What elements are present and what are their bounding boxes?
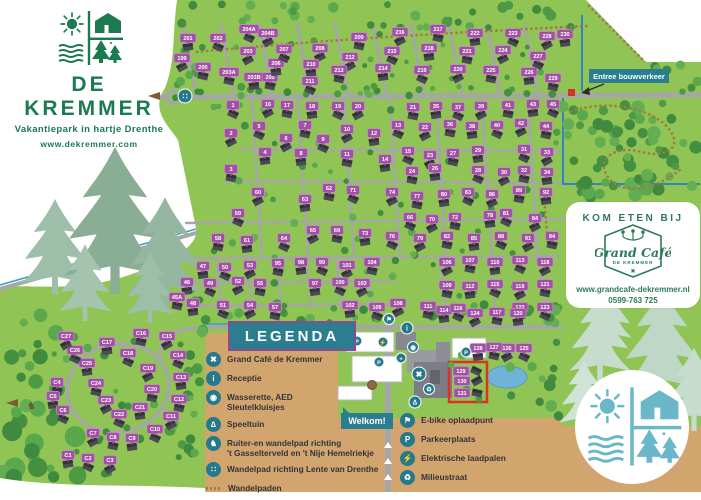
tree bbox=[553, 129, 560, 136]
tree bbox=[271, 17, 278, 24]
house-number: 108 bbox=[393, 301, 402, 307]
house-number: 224 bbox=[498, 48, 508, 54]
house-number: 92 bbox=[543, 190, 549, 196]
house-number: 223 bbox=[508, 31, 517, 37]
svg-text:◉: ◉ bbox=[410, 344, 416, 351]
house-number: 36 bbox=[447, 122, 453, 128]
house-number: 115 bbox=[490, 282, 499, 288]
brand-badge bbox=[575, 370, 689, 484]
house-number: 82 bbox=[444, 234, 450, 240]
tree bbox=[24, 443, 40, 459]
utensils-icon: ✖ bbox=[206, 352, 221, 367]
house-number: 112 bbox=[465, 284, 474, 290]
house-number: C12 bbox=[174, 397, 184, 403]
svg-text:✖: ✖ bbox=[416, 370, 423, 379]
house-marker: 3 bbox=[225, 165, 238, 183]
tree bbox=[18, 349, 26, 357]
tree bbox=[28, 458, 47, 477]
house-number: 16 bbox=[265, 102, 271, 108]
house-number: 32 bbox=[521, 168, 527, 174]
tree bbox=[368, 56, 374, 62]
tree bbox=[640, 182, 653, 195]
house-number: C7 bbox=[89, 431, 96, 437]
house-number: 226 bbox=[524, 70, 533, 76]
house-number: 81 bbox=[503, 211, 509, 217]
tree bbox=[271, 279, 279, 287]
tree bbox=[480, 300, 489, 309]
house-number: 203 bbox=[243, 49, 252, 55]
svg-text:⚡: ⚡ bbox=[379, 338, 386, 346]
legend-item: iReceptie bbox=[206, 371, 392, 386]
tree bbox=[390, 73, 395, 78]
house-number: 44 bbox=[543, 124, 550, 130]
house-number: 50 bbox=[222, 265, 228, 271]
house-number: 89 bbox=[516, 188, 522, 194]
house-number: 74 bbox=[389, 190, 396, 196]
tree bbox=[177, 19, 186, 28]
tree bbox=[330, 305, 337, 312]
house-number: 217 bbox=[433, 27, 442, 33]
tree bbox=[284, 88, 292, 96]
house-number: 41 bbox=[505, 103, 511, 109]
house-number: 29 bbox=[475, 148, 481, 154]
legend-item: ⚡Elektrische laadpalen bbox=[400, 451, 535, 466]
house-number: C4 bbox=[53, 380, 61, 386]
tree bbox=[190, 449, 199, 458]
svg-text:⚑: ⚑ bbox=[386, 316, 392, 323]
tree bbox=[270, 197, 276, 203]
tree bbox=[612, 127, 623, 138]
house-marker: 57 bbox=[269, 303, 282, 321]
house-number: C15 bbox=[162, 334, 172, 340]
ebike-icon: ⚑ bbox=[400, 413, 415, 428]
trash-icon: ♻ bbox=[400, 470, 415, 485]
house-number: 129 bbox=[456, 369, 465, 375]
tree bbox=[367, 291, 374, 298]
tree bbox=[570, 156, 579, 165]
house-marker: 35 bbox=[430, 102, 443, 120]
legend-right-column: ⚑E-bike oplaadpuntPParkeerplaats⚡Elektri… bbox=[400, 413, 535, 489]
tree bbox=[455, 19, 462, 26]
reception-marker: i bbox=[401, 322, 413, 334]
construction-entrance-marker bbox=[568, 89, 575, 96]
tree bbox=[47, 465, 55, 473]
tree bbox=[564, 131, 573, 140]
tree bbox=[679, 88, 685, 94]
ev-charger-icon: ⚡ bbox=[400, 451, 415, 466]
tree bbox=[405, 92, 412, 99]
tree bbox=[359, 305, 368, 314]
tree bbox=[195, 377, 204, 386]
tree bbox=[185, 350, 195, 360]
tree bbox=[389, 272, 397, 280]
house-number: C1 bbox=[64, 453, 71, 459]
tree bbox=[460, 248, 465, 253]
house-number: 15 bbox=[405, 149, 411, 155]
house-marker: 36 bbox=[444, 120, 457, 138]
washer-icon: ◉ bbox=[206, 390, 221, 405]
legend-item: ∷Wandelpad richting Lente van Drenthe bbox=[206, 462, 392, 477]
house-number: 70 bbox=[429, 217, 435, 223]
tree bbox=[468, 85, 473, 90]
tree bbox=[374, 88, 380, 94]
house-marker: 4 bbox=[259, 148, 272, 166]
house-marker: 11 bbox=[341, 150, 354, 168]
house-number: 18 bbox=[309, 104, 315, 110]
house-number: C23 bbox=[101, 398, 111, 404]
grand-cafe-logo: Grand Café DE KREMMER ✖ bbox=[595, 224, 671, 278]
house-number: 53 bbox=[247, 263, 253, 269]
tree bbox=[358, 91, 363, 96]
horse-statue-icon: ♞ bbox=[27, 401, 36, 412]
house-marker: 38 bbox=[466, 122, 479, 140]
house-marker: C1 bbox=[62, 451, 75, 469]
house-marker: 94 bbox=[546, 232, 559, 250]
tree bbox=[440, 42, 445, 47]
tree bbox=[687, 181, 697, 191]
house-number: 203A bbox=[222, 70, 235, 76]
tree bbox=[237, 92, 244, 99]
house-number: 54 bbox=[247, 303, 254, 309]
tree bbox=[545, 400, 557, 412]
house-number: 100 bbox=[335, 280, 344, 286]
house-number: 125 bbox=[519, 346, 528, 352]
house-number: 230 bbox=[560, 32, 569, 38]
house-number: 120 bbox=[513, 311, 522, 317]
house-number: 201 bbox=[183, 36, 192, 42]
tree bbox=[63, 355, 71, 363]
tree bbox=[239, 17, 247, 25]
tree bbox=[523, 90, 530, 97]
house-number: 34 bbox=[544, 170, 551, 176]
tree bbox=[638, 128, 648, 138]
tree bbox=[593, 164, 602, 173]
footsteps-icon: ∷ bbox=[206, 462, 221, 477]
house-number: C13 bbox=[176, 375, 186, 381]
tree bbox=[620, 100, 630, 110]
house-number: C9 bbox=[128, 436, 135, 442]
park-logo: DE KREMMER Vakantiepark in hartje Drenth… bbox=[6, 8, 172, 149]
legend-label: E-bike oplaadpunt bbox=[421, 413, 493, 425]
tree bbox=[328, 169, 333, 174]
house-number: 52 bbox=[235, 279, 241, 285]
house-marker: 98 bbox=[295, 258, 308, 276]
house-number: 42 bbox=[518, 121, 524, 127]
tree bbox=[672, 163, 680, 171]
house-number: 69 bbox=[334, 228, 340, 234]
park-tagline: Vakantiepark in hartje Drenthe bbox=[6, 124, 172, 135]
house-number: 46 bbox=[184, 280, 190, 286]
tree bbox=[272, 141, 278, 147]
house-number: 33 bbox=[544, 150, 550, 156]
tree bbox=[20, 319, 28, 327]
tree bbox=[188, 1, 197, 10]
house-marker: 41 bbox=[502, 101, 515, 119]
house-marker: 26 bbox=[429, 164, 442, 182]
tree bbox=[655, 146, 662, 153]
tree bbox=[289, 7, 297, 15]
info-icon: i bbox=[206, 371, 221, 386]
house-number: C25 bbox=[82, 361, 92, 367]
tree bbox=[510, 86, 515, 91]
house-number: 206 bbox=[271, 61, 280, 67]
house-number: 65 bbox=[310, 228, 316, 234]
house-marker: 63 bbox=[299, 195, 312, 213]
house-number: 113 bbox=[515, 258, 524, 264]
house-number: 79 bbox=[417, 236, 423, 242]
house-number: 222 bbox=[470, 31, 479, 37]
house-number: 212 bbox=[345, 55, 354, 61]
house-number: 40 bbox=[494, 123, 500, 129]
house-number: 210 bbox=[306, 62, 315, 68]
house-number: 119 bbox=[515, 284, 524, 290]
house-number: 47 bbox=[200, 264, 206, 270]
house-number: 1 bbox=[231, 103, 234, 109]
house-number: 105 bbox=[372, 305, 381, 311]
tree bbox=[48, 471, 59, 482]
house-number: C6 bbox=[59, 408, 66, 414]
house-marker: 85 bbox=[468, 234, 481, 252]
ev-charger-marker: ⚡ bbox=[378, 337, 388, 347]
tree bbox=[543, 6, 553, 16]
tree bbox=[505, 362, 515, 372]
house-number: 49 bbox=[207, 281, 213, 287]
house-number: 121 bbox=[540, 282, 549, 288]
tree bbox=[599, 106, 608, 115]
house-number: C19 bbox=[143, 366, 153, 372]
tree bbox=[380, 22, 387, 29]
tree bbox=[199, 44, 206, 51]
house-marker: 58 bbox=[212, 234, 225, 252]
house-number: C26 bbox=[70, 348, 80, 354]
house-number: 62 bbox=[326, 186, 332, 192]
house-number: 203B bbox=[247, 75, 260, 81]
playground-icon: ∆ bbox=[206, 417, 221, 432]
tree bbox=[562, 118, 574, 130]
house-number: 43 bbox=[530, 102, 536, 108]
house-number: 199 bbox=[177, 56, 186, 62]
house-number: 83 bbox=[465, 190, 471, 196]
tree bbox=[328, 2, 338, 12]
tree bbox=[532, 5, 541, 14]
tree bbox=[16, 373, 25, 382]
tree bbox=[190, 411, 197, 418]
legend-item: PParkeerplaats bbox=[400, 432, 535, 447]
house-marker: 97 bbox=[309, 279, 322, 297]
tree bbox=[201, 315, 211, 325]
house-number: 31 bbox=[521, 147, 527, 153]
dashed-path-icon bbox=[206, 487, 222, 490]
tree bbox=[194, 89, 200, 95]
house-marker: 32 bbox=[518, 166, 531, 184]
house-marker: 73 bbox=[359, 229, 372, 247]
legend-item: ∆Speeltuin bbox=[206, 417, 392, 432]
house-number: 22 bbox=[422, 125, 428, 131]
cafe-heading: KOM ETEN BIJ bbox=[566, 213, 700, 224]
house-number: 107 bbox=[465, 258, 474, 264]
tree bbox=[554, 411, 563, 420]
house-number: 104 bbox=[367, 260, 377, 266]
tree bbox=[33, 340, 41, 348]
house-number: 76 bbox=[389, 234, 395, 240]
tree bbox=[366, 91, 373, 98]
house-number: 118 bbox=[540, 260, 549, 266]
house-number: C5 bbox=[49, 394, 56, 400]
house-number: 128 bbox=[473, 346, 482, 352]
house-number: 8 bbox=[299, 151, 302, 157]
house-number: C21 bbox=[135, 405, 145, 411]
house-number: 214 bbox=[378, 66, 388, 72]
tree bbox=[69, 467, 87, 485]
tree bbox=[234, 308, 243, 317]
tree bbox=[410, 251, 416, 257]
tree bbox=[469, 9, 476, 16]
tree bbox=[410, 11, 420, 21]
legend-label: Wasserette, AEDSleutelkluisjes bbox=[227, 390, 293, 413]
house-number: 37 bbox=[455, 105, 461, 111]
house-number: C17 bbox=[102, 340, 112, 346]
tree bbox=[216, 104, 222, 110]
house-number: 102 bbox=[345, 303, 354, 309]
tree bbox=[594, 189, 604, 199]
house-number: 130 bbox=[457, 379, 466, 385]
house-number: 14 bbox=[382, 157, 389, 163]
cafe-phone: 0599-763 725 bbox=[566, 296, 700, 305]
wasserette-marker: ◉ bbox=[408, 342, 419, 353]
house-number: 227 bbox=[533, 54, 542, 60]
tree bbox=[280, 2, 287, 9]
house-number: 131 bbox=[457, 391, 466, 397]
tree bbox=[497, 2, 508, 13]
tree bbox=[688, 84, 696, 92]
tree bbox=[504, 75, 510, 81]
tree bbox=[601, 179, 609, 187]
house-marker: 131 bbox=[454, 389, 483, 398]
house-number: 95 bbox=[275, 261, 281, 267]
house-number: 207 bbox=[279, 47, 288, 53]
tree bbox=[367, 21, 375, 29]
house-number: 64 bbox=[281, 236, 288, 242]
house-number: 202 bbox=[213, 36, 222, 42]
tree bbox=[229, 239, 236, 246]
tree bbox=[624, 119, 635, 130]
house-number: 20 bbox=[355, 104, 361, 110]
horse-icon: ♞ bbox=[206, 436, 221, 451]
house-number: 110 bbox=[490, 260, 499, 266]
legend-label: Receptie bbox=[227, 371, 262, 383]
house-number: 88 bbox=[498, 234, 504, 240]
footpath-exit-marker: ∷ bbox=[178, 89, 192, 103]
tree bbox=[52, 351, 57, 356]
house-number: C18 bbox=[123, 351, 133, 357]
tree bbox=[246, 0, 256, 10]
tree bbox=[629, 112, 637, 120]
house-marker: 34 bbox=[541, 168, 554, 186]
grand-cafe-marker: ✖ bbox=[412, 367, 426, 381]
house-number: 5 bbox=[257, 124, 260, 130]
legend-label: Grand Café de Kremmer bbox=[227, 352, 322, 364]
legend-label: Elektrische laadpalen bbox=[421, 451, 506, 463]
house-number: 78 bbox=[487, 213, 493, 219]
house-marker: 72 bbox=[449, 213, 462, 231]
tree bbox=[237, 83, 245, 91]
house-number: 215 bbox=[387, 49, 396, 55]
tree bbox=[648, 135, 658, 145]
park-map-poster: 199200201202203203A203B204A204B205206207… bbox=[0, 0, 701, 500]
legend-title: LEGENDA bbox=[228, 321, 356, 351]
tree bbox=[456, 84, 461, 89]
house-marker: 14 bbox=[379, 155, 392, 173]
house-number: 77 bbox=[414, 194, 420, 200]
tree bbox=[676, 61, 685, 70]
tree bbox=[4, 350, 19, 365]
house-number: 213 bbox=[334, 68, 343, 74]
house-number: 66 bbox=[407, 215, 413, 221]
house-marker: 69 bbox=[331, 226, 344, 244]
legend-item: Wandelpaden bbox=[206, 481, 392, 493]
house-number: 45 bbox=[550, 102, 556, 108]
tree bbox=[34, 309, 48, 323]
house-number: 10 bbox=[344, 127, 350, 133]
tree bbox=[235, 177, 243, 185]
legend-item: ◉Wasserette, AEDSleutelkluisjes bbox=[206, 390, 392, 413]
tree bbox=[186, 434, 196, 444]
ebike-marker: ⚑ bbox=[384, 314, 395, 325]
house-number: C27 bbox=[61, 334, 71, 340]
house-number: 23 bbox=[427, 153, 433, 159]
tree bbox=[11, 407, 22, 418]
tree bbox=[307, 16, 315, 24]
house-marker: 44 bbox=[540, 122, 553, 140]
tree bbox=[553, 339, 560, 346]
legend-item: ♞Ruiter-en wandelpad richting't Gasselte… bbox=[206, 436, 392, 459]
house-marker: 78 bbox=[484, 211, 497, 229]
tree bbox=[118, 401, 126, 409]
tree bbox=[28, 374, 43, 389]
house-number: 45A bbox=[172, 295, 182, 301]
tree bbox=[387, 106, 395, 114]
house-number: 27 bbox=[450, 151, 456, 157]
tree bbox=[423, 23, 431, 31]
tree bbox=[176, 454, 182, 460]
house-number: 204A bbox=[242, 27, 255, 33]
house-number: 216 bbox=[395, 30, 404, 36]
tree bbox=[431, 262, 436, 267]
house-marker: 89 bbox=[513, 186, 526, 204]
house-number: 209 bbox=[354, 35, 363, 41]
house-number: 101 bbox=[342, 263, 351, 269]
cafe-website: www.grandcafe-dekremmer.nl bbox=[566, 285, 700, 294]
aed-marker: + bbox=[396, 353, 406, 363]
house-number: 17 bbox=[284, 103, 290, 109]
house-number: 200 bbox=[198, 65, 207, 71]
parking-marker: P bbox=[461, 347, 471, 357]
house-number: C16 bbox=[136, 331, 146, 337]
house-number: 6 bbox=[284, 136, 287, 142]
tree bbox=[312, 162, 318, 168]
svg-text:i: i bbox=[406, 326, 408, 333]
house-number: 225 bbox=[486, 68, 495, 74]
house-number: C20 bbox=[147, 387, 157, 393]
tree bbox=[577, 110, 588, 121]
tree bbox=[349, 213, 357, 221]
house-number: 204B bbox=[261, 31, 274, 37]
tree bbox=[178, 342, 184, 348]
house-number: 117 bbox=[492, 310, 501, 316]
house-marker: 48 bbox=[187, 299, 200, 317]
house-marker: 95 bbox=[272, 259, 285, 277]
house-number: 9 bbox=[321, 137, 324, 143]
